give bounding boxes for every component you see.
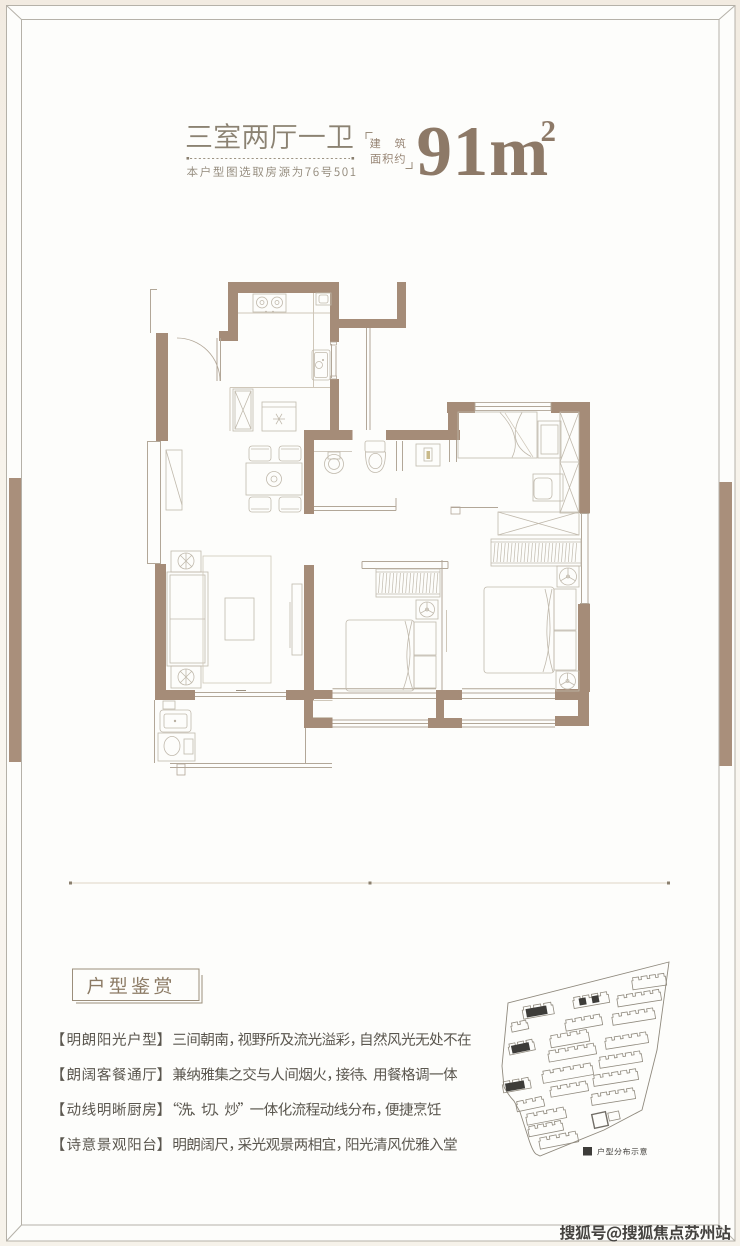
svg-text:2: 2 — [541, 113, 557, 148]
svg-text:91m: 91m — [417, 113, 550, 191]
